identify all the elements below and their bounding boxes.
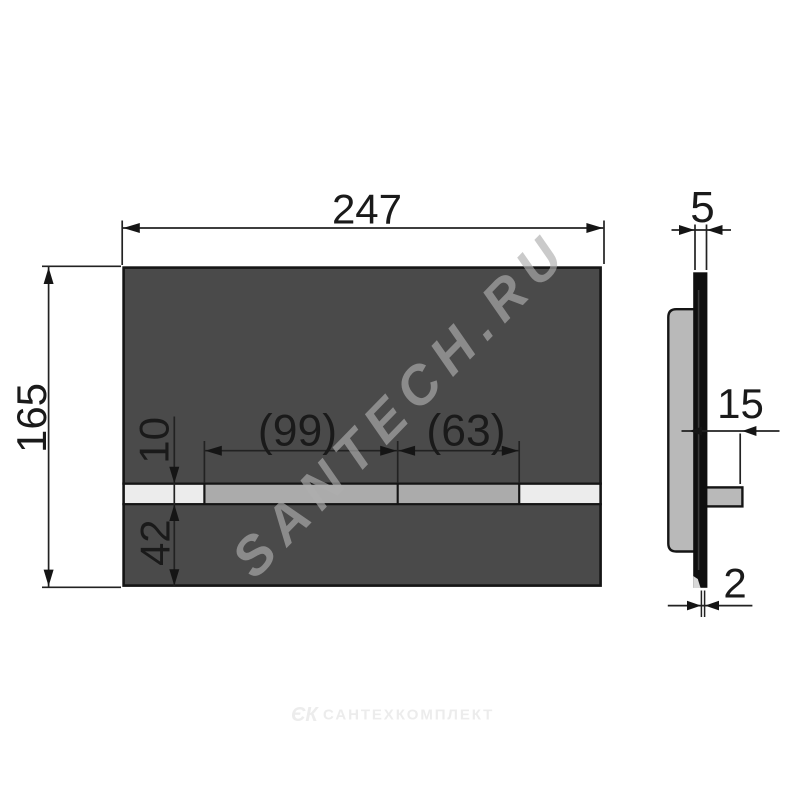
svg-text:10: 10 — [131, 417, 178, 464]
svg-text:5: 5 — [690, 183, 714, 232]
svg-text:15: 15 — [717, 380, 764, 427]
svg-text:42: 42 — [132, 519, 179, 566]
svg-text:ЄК: ЄК — [291, 704, 319, 726]
svg-text:247: 247 — [332, 186, 402, 233]
svg-text:2: 2 — [723, 560, 746, 607]
svg-text:165: 165 — [8, 383, 55, 453]
svg-text:САНТЕХКОМПЛЕКТ: САНТЕХКОМПЛЕКТ — [323, 707, 494, 724]
svg-text:(63): (63) — [426, 407, 505, 456]
